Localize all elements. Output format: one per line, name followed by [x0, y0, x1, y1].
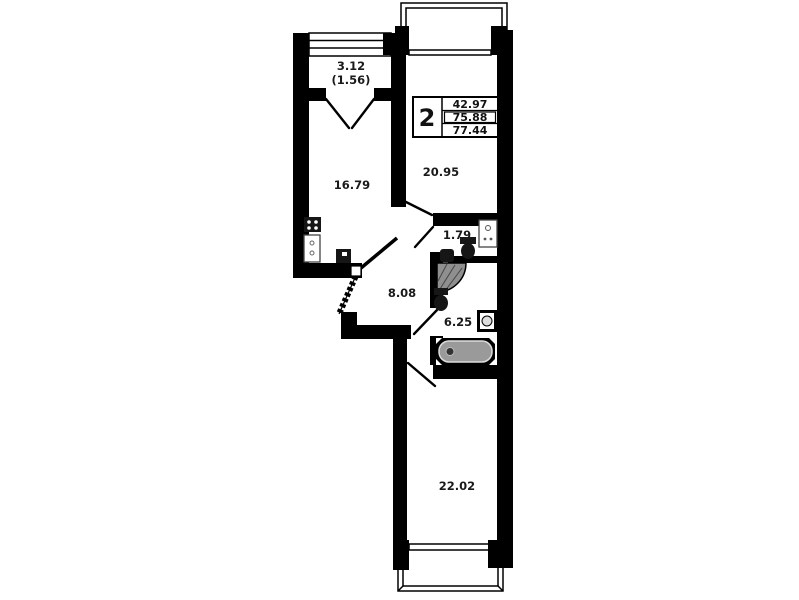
washing-machine-icon [479, 220, 497, 247]
wall-balcony-post-right [374, 88, 391, 101]
legend-room-count: 2 [419, 104, 436, 132]
living-room-area-label: 20.95 [423, 165, 459, 179]
vent-shaft-icon [336, 249, 351, 263]
wc-area-label: 1.79 [443, 228, 471, 242]
shower-icon [437, 263, 466, 292]
bathroom-door-leaf [414, 310, 437, 334]
wall-right-outer [497, 30, 513, 562]
wc-door-leaf [415, 227, 433, 247]
living-room-window [409, 50, 491, 55]
kitchen-sink-icon [304, 235, 320, 262]
bottom-bay-outer [398, 566, 503, 591]
wall-kitchen-hall-diagonal [361, 238, 397, 268]
wall-bottom-bay-pillar-right [488, 540, 513, 568]
balcony-door-leaf-left [326, 99, 349, 128]
wc-sink-icon [440, 249, 454, 262]
legend-box: 2 42.97 75.88 77.44 [413, 97, 498, 137]
kitchen-area-label: 16.79 [334, 178, 370, 192]
wall-hall-bottom [341, 325, 411, 339]
top-bay-inner [406, 8, 502, 33]
wall-top-bay-pillar-left [395, 26, 409, 55]
wall-bottom-bay-pillar-left [393, 540, 409, 570]
legend-total-area-with-balcony: 77.44 [453, 124, 488, 137]
bedroom-area-label: 22.02 [439, 479, 475, 493]
living-room-door-leaf [404, 201, 432, 215]
bedroom-door-leaf [408, 363, 435, 386]
floor-plan-page: 2 42.97 75.88 77.44 3.12 (1.56) 16.79 20… [0, 0, 799, 600]
wall-bedroom-left [393, 339, 407, 570]
wall-divider [391, 33, 406, 207]
bathtub-icon [436, 338, 495, 365]
hallway-area-label: 8.08 [388, 286, 416, 300]
stove-icon [304, 217, 321, 232]
electric-panel-icon [351, 266, 361, 276]
bedroom-window [409, 544, 489, 550]
bathroom-sink-icon [477, 310, 497, 332]
bathroom-area-label: 6.25 [444, 315, 472, 329]
wall-balcony-post-left [309, 88, 326, 101]
doors [326, 99, 437, 386]
balcony-reduced-area-label: (1.56) [332, 73, 371, 87]
legend-total-area: 75.88 [453, 111, 488, 124]
bottom-bay-inner [403, 566, 498, 586]
balcony-area-label: 3.12 [337, 59, 365, 73]
balcony-door-leaf-right [352, 99, 374, 128]
wall-top-bay-pillar-right [491, 26, 507, 55]
floor-plan-drawing: 2 42.97 75.88 77.44 3.12 (1.56) 16.79 20… [0, 0, 799, 600]
balcony-window [309, 33, 391, 56]
bathroom-toilet-icon [434, 288, 448, 311]
legend-living-area: 42.97 [453, 98, 488, 111]
